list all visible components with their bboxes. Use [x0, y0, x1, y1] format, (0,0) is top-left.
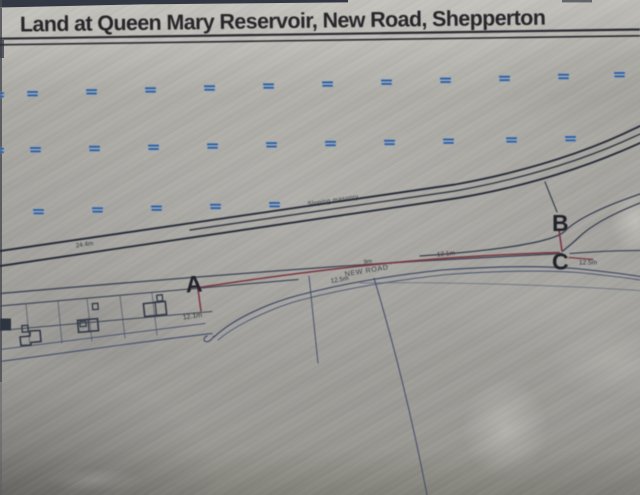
svg-text:C: C: [552, 249, 569, 275]
svg-text:24.4m: 24.4m: [75, 240, 93, 249]
svg-text:B: B: [552, 210, 569, 236]
svg-text:12.1m: 12.1m: [182, 312, 202, 322]
svg-text:12.5m: 12.5m: [330, 275, 349, 285]
svg-text:A: A: [185, 270, 203, 297]
svg-text:12.5m: 12.5m: [579, 260, 597, 267]
